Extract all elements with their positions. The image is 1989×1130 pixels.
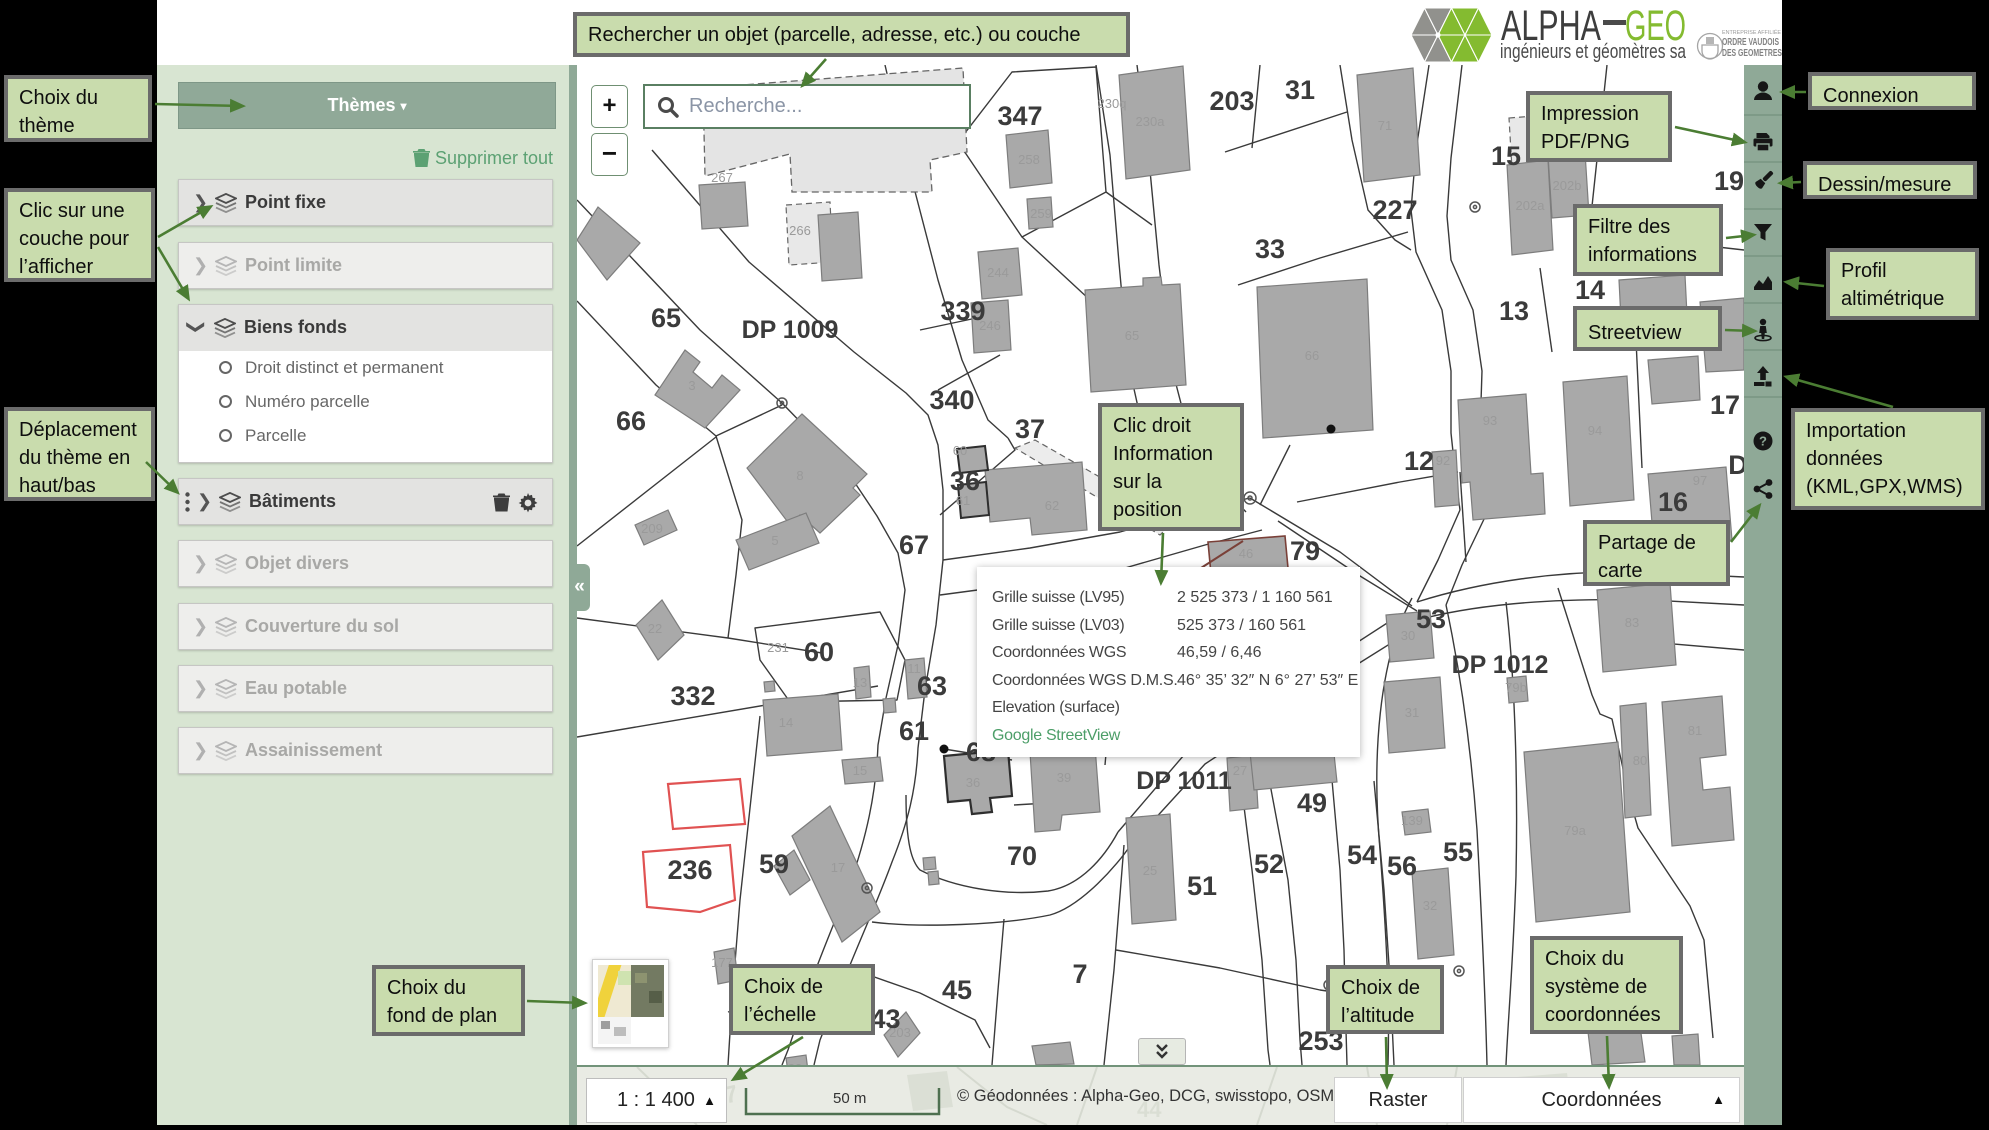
svg-text:62: 62 [1045,498,1059,513]
svg-text:3: 3 [688,378,695,393]
svg-text:347: 347 [997,101,1042,131]
svg-text:54: 54 [1347,840,1377,870]
svg-text:15: 15 [853,763,867,778]
svg-text:36: 36 [966,775,980,790]
svg-text:65: 65 [651,303,681,333]
svg-text:32: 32 [1423,898,1437,913]
svg-text:ENTREPRISE AFFILIÉE: ENTREPRISE AFFILIÉE [1722,29,1781,36]
svg-text:27: 27 [1233,763,1247,778]
svg-text:67: 67 [899,530,929,560]
svg-text:45: 45 [942,975,972,1005]
svg-text:50 m: 50 m [833,1090,866,1107]
svg-text:ingénieurs et géomètres sa: ingénieurs et géomètres sa [1500,41,1687,63]
svg-text:8: 8 [796,468,803,483]
svg-text:55: 55 [1443,837,1473,867]
svg-text:?: ? [1759,434,1767,449]
svg-text:46: 46 [1239,546,1253,561]
svg-text:332: 332 [670,681,715,711]
svg-text:37: 37 [1015,414,1045,444]
svg-text:14: 14 [779,715,793,730]
svg-text:230a: 230a [1136,114,1166,129]
svg-text:60: 60 [953,443,967,458]
svg-text:202a: 202a [1516,198,1546,213]
svg-text:DP 1012: DP 1012 [1452,651,1549,679]
svg-text:61: 61 [899,716,929,746]
svg-text:13: 13 [1499,296,1529,326]
svg-text:83: 83 [1625,615,1639,630]
svg-text:94: 94 [1588,423,1602,438]
svg-text:49: 49 [1297,788,1327,818]
svg-text:25: 25 [1143,863,1157,878]
svg-text:231: 231 [767,640,789,655]
svg-text:71: 71 [1378,118,1392,133]
svg-text:66: 66 [616,406,646,436]
svg-text:227: 227 [1372,195,1417,225]
svg-text:33: 33 [1255,234,1285,264]
svg-text:59: 59 [759,849,789,879]
svg-text:19: 19 [1714,166,1744,196]
svg-text:230q: 230q [1098,96,1127,111]
svg-text:DP 1011: DP 1011 [1136,767,1232,795]
svg-text:ORDRE VAUDOIS: ORDRE VAUDOIS [1722,37,1779,48]
svg-text:139: 139 [1401,813,1423,828]
svg-text:D: D [1728,450,1744,480]
svg-text:340: 340 [929,385,974,415]
svg-text:17: 17 [1710,390,1740,420]
svg-text:267: 267 [711,170,733,185]
svg-text:DP 1009: DP 1009 [742,316,839,344]
svg-text:209: 209 [641,521,663,536]
svg-text:11: 11 [907,661,921,676]
svg-text:53: 53 [1416,604,1446,634]
svg-text:236: 236 [667,855,712,885]
svg-text:17: 17 [831,860,845,875]
svg-text:36: 36 [950,466,980,496]
svg-text:13: 13 [853,675,867,690]
svg-text:22: 22 [648,621,662,636]
svg-text:266: 266 [789,223,811,238]
svg-text:79b: 79b [1505,680,1527,695]
svg-text:31: 31 [1285,75,1315,105]
svg-text:14: 14 [1575,275,1605,305]
svg-text:52: 52 [1254,849,1284,879]
svg-text:56: 56 [1387,851,1417,881]
svg-text:51: 51 [1187,871,1217,901]
svg-text:81: 81 [1688,723,1702,738]
svg-text:244: 244 [987,265,1009,280]
svg-text:DES GEOMETRES: DES GEOMETRES [1722,48,1782,59]
svg-text:12: 12 [1404,446,1434,476]
svg-text:246: 246 [979,318,1001,333]
svg-text:79: 79 [1290,536,1320,566]
svg-text:79a: 79a [1564,823,1586,838]
svg-text:16: 16 [1658,487,1688,517]
svg-text:259: 259 [1030,206,1052,221]
svg-text:61: 61 [956,493,970,508]
svg-text:203: 203 [1209,86,1254,116]
svg-text:92: 92 [1436,453,1450,468]
svg-text:60: 60 [804,637,834,667]
svg-text:5: 5 [771,533,778,548]
svg-text:66: 66 [1305,348,1319,363]
svg-text:203: 203 [889,1025,911,1040]
svg-text:7: 7 [1072,959,1087,989]
svg-text:258: 258 [1018,152,1040,167]
svg-text:63: 63 [917,671,947,701]
svg-text:97: 97 [1693,473,1707,488]
svg-text:39: 39 [1057,770,1071,785]
svg-text:15: 15 [1491,141,1521,171]
svg-text:70: 70 [1007,841,1037,871]
svg-text:31: 31 [1405,705,1419,720]
svg-text:93: 93 [1483,413,1497,428]
svg-text:30: 30 [1401,628,1415,643]
svg-text:80: 80 [1633,753,1647,768]
svg-text:202b: 202b [1553,178,1582,193]
svg-text:65: 65 [1125,328,1139,343]
